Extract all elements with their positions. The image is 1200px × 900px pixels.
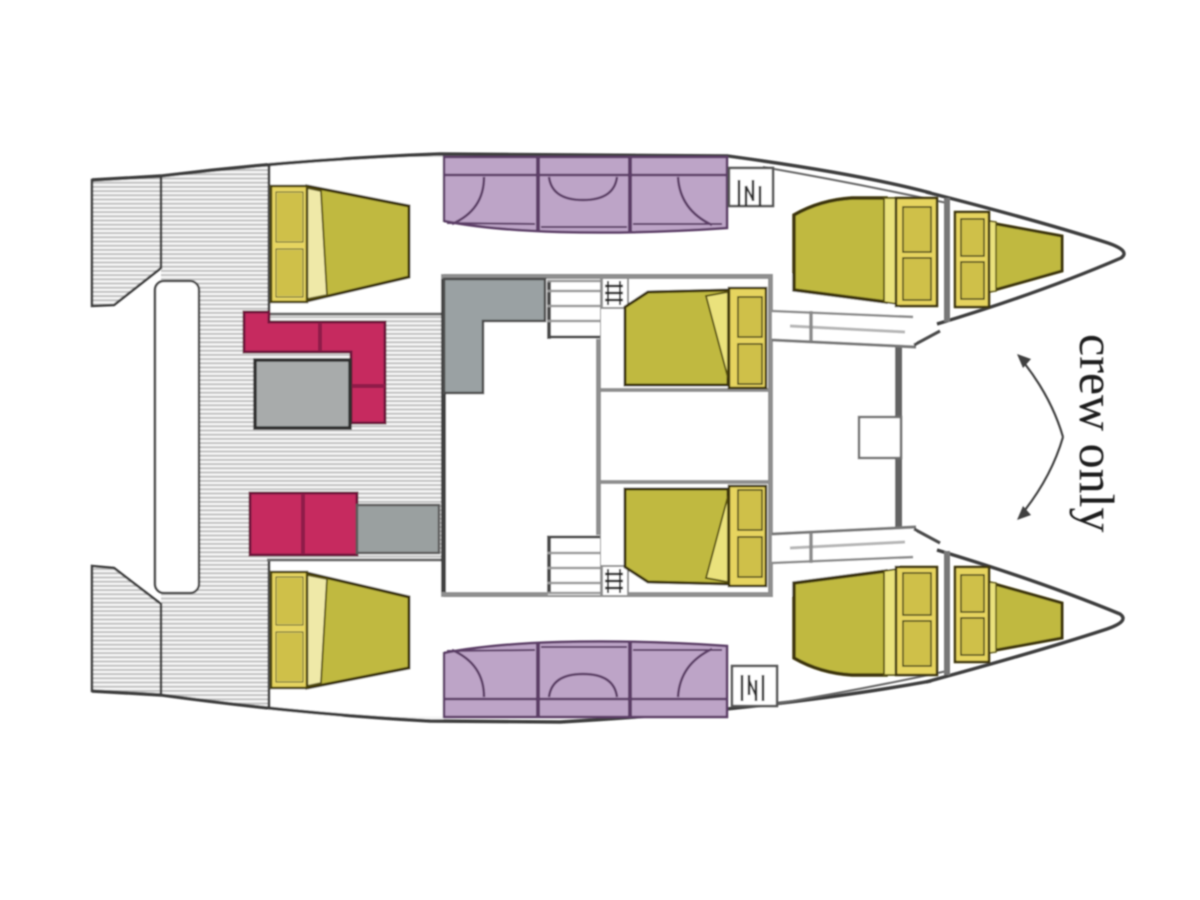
svg-text:crew only: crew only (1069, 334, 1125, 533)
